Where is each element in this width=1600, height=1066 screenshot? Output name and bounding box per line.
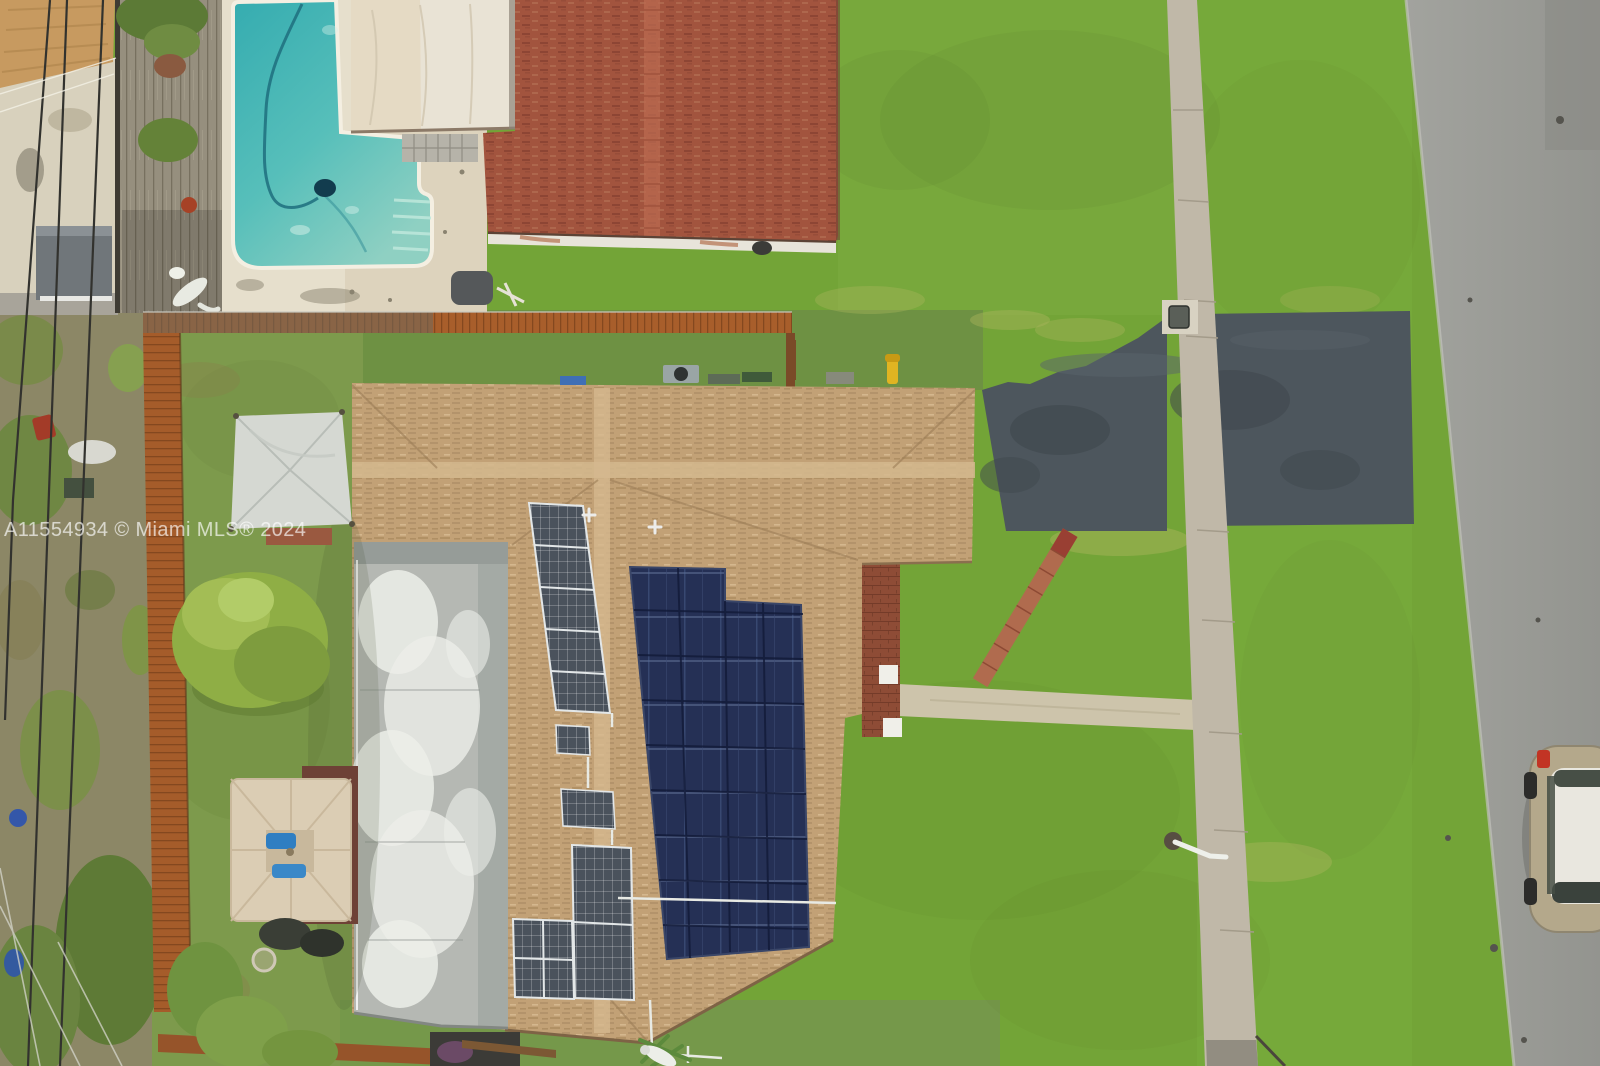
roof-ridge-horizontal xyxy=(352,462,975,478)
blue-cushion-1 xyxy=(266,833,296,849)
car-side-windows xyxy=(1547,776,1555,894)
patio-post-2 xyxy=(883,718,902,737)
yellow-green-tree xyxy=(172,572,330,716)
solar-panel-small xyxy=(556,725,590,755)
white-debris-pile xyxy=(68,440,116,464)
umbrella-pole xyxy=(286,848,294,856)
green-utility-box xyxy=(64,478,94,498)
silver-tarp-canopy xyxy=(228,409,355,532)
patio-chair-2 xyxy=(300,929,344,957)
aerial-photo: A11554934 © Miami MLS® 2024 xyxy=(0,0,1600,1066)
blue-object xyxy=(9,809,27,827)
utility-marker-box xyxy=(1169,306,1189,328)
blue-tarp xyxy=(560,376,586,385)
brick-patio xyxy=(860,562,902,737)
patio-umbrella xyxy=(231,779,351,921)
pool-vacuum xyxy=(314,179,336,197)
brick-edge xyxy=(266,528,332,545)
hanging-plant xyxy=(138,118,198,162)
wood-post xyxy=(788,340,796,380)
blue-cushion-2 xyxy=(272,864,306,878)
gray-shed xyxy=(36,226,112,300)
car-windshield xyxy=(1552,882,1600,903)
grill xyxy=(451,271,493,305)
sidewalk-dark-patch xyxy=(1206,1040,1258,1066)
car-wheel-rear xyxy=(1524,772,1537,799)
car-rear-window xyxy=(1554,770,1600,787)
stone-ring xyxy=(253,949,275,971)
red-pot xyxy=(181,197,197,213)
patio-post-1 xyxy=(879,665,898,684)
car-taillight xyxy=(1537,750,1550,768)
car-wheel-front xyxy=(1524,878,1537,905)
plant-pot xyxy=(154,54,186,78)
aerial-photo-canvas xyxy=(0,0,1600,1066)
deck-fence-line xyxy=(115,0,120,313)
solar-panel-medium xyxy=(561,789,615,829)
parked-car xyxy=(1522,746,1600,932)
hvac-fan xyxy=(674,367,688,381)
neighbor-red-shingle-roof xyxy=(483,0,838,242)
green-box-1 xyxy=(708,374,740,384)
green-box-2 xyxy=(742,372,772,382)
wood-plank-deck xyxy=(115,0,232,313)
fascia-wheel-object xyxy=(752,241,772,255)
